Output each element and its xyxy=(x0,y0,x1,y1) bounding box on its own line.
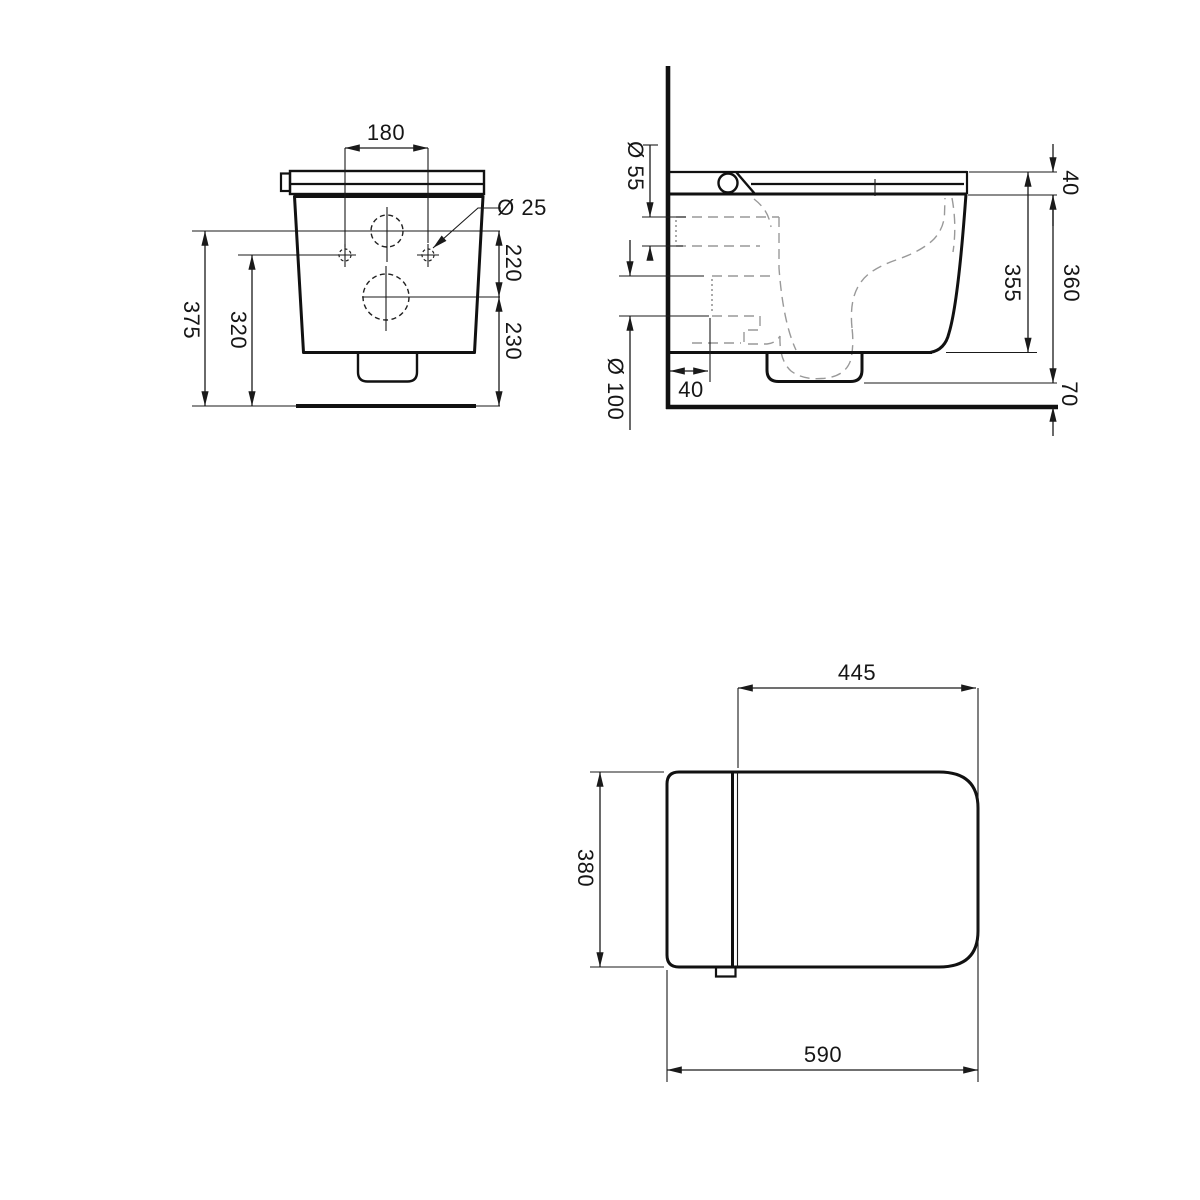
dim-label-seat-thickness: 40 xyxy=(1058,170,1083,195)
dim-hole-diameter: Ø 25 xyxy=(433,195,547,248)
internal-inlet-pipe-dashed xyxy=(676,199,796,350)
dim-label-outlet-center-height: 230 xyxy=(501,322,526,360)
dim-outlet-wall-offset: 40 xyxy=(670,318,710,402)
dim-bowl-width: 380 xyxy=(573,772,664,967)
dim-fixing-hole-height: 320 xyxy=(226,255,252,406)
seat-lid-front-outline xyxy=(290,171,484,194)
front-view: 180 Ø 25 375 320 220 230 xyxy=(179,120,547,406)
dim-label-bowl-width: 380 xyxy=(573,849,598,887)
top-view: 445 380 590 xyxy=(573,660,978,1082)
dim-total-depth: 590 xyxy=(667,970,978,1082)
dim-inlet-to-outlet: 220 xyxy=(499,231,526,297)
seat-hinge-circle xyxy=(719,174,738,193)
dim-label-outlet-wall-offset: 40 xyxy=(678,377,703,402)
dim-label-total-depth: 590 xyxy=(804,1042,842,1067)
drain-spout-front xyxy=(358,352,417,382)
dim-label-hole-spacing: 180 xyxy=(367,120,405,145)
drawing-page: 180 Ø 25 375 320 220 230 xyxy=(0,0,1200,1200)
internal-outlet-pipe-dashed xyxy=(692,276,780,344)
mounting-hole-left xyxy=(334,244,356,267)
side-view: 40 360 355 70 Ø 55 xyxy=(603,66,1084,436)
dim-label-seat-inlet-diameter: Ø 55 xyxy=(623,141,648,191)
dim-body-height: 360 xyxy=(1053,195,1084,383)
dim-inner-depth: 355 xyxy=(1000,172,1028,353)
dim-label-seat-depth: 445 xyxy=(838,660,876,685)
dim-label-body-height: 360 xyxy=(1059,264,1084,302)
seat-hinge-tab xyxy=(281,174,290,192)
dim-label-inlet-to-outlet: 220 xyxy=(501,244,526,282)
mounting-hole-right xyxy=(417,244,439,267)
technical-drawing-canvas: 180 Ø 25 375 320 220 230 xyxy=(0,0,1200,1200)
dim-label-outlet-diameter: Ø 100 xyxy=(603,358,628,420)
dim-outlet-center-height: 230 xyxy=(499,297,526,406)
dim-label-inlet-center-height: 375 xyxy=(179,301,204,339)
dim-label-hole-diameter: Ø 25 xyxy=(497,195,547,220)
dim-label-floor-clearance: 70 xyxy=(1057,381,1082,406)
dim-label-inner-depth: 355 xyxy=(1000,264,1025,302)
toilet-body-top-outline xyxy=(667,772,978,967)
dim-seat-depth: 445 xyxy=(738,660,978,1082)
toilet-body-side-outline xyxy=(930,194,966,353)
dim-inlet-center-height: 375 xyxy=(179,231,205,406)
dim-seat-thickness: 40 xyxy=(1053,144,1083,226)
dim-label-fixing-hole-height: 320 xyxy=(226,311,251,349)
